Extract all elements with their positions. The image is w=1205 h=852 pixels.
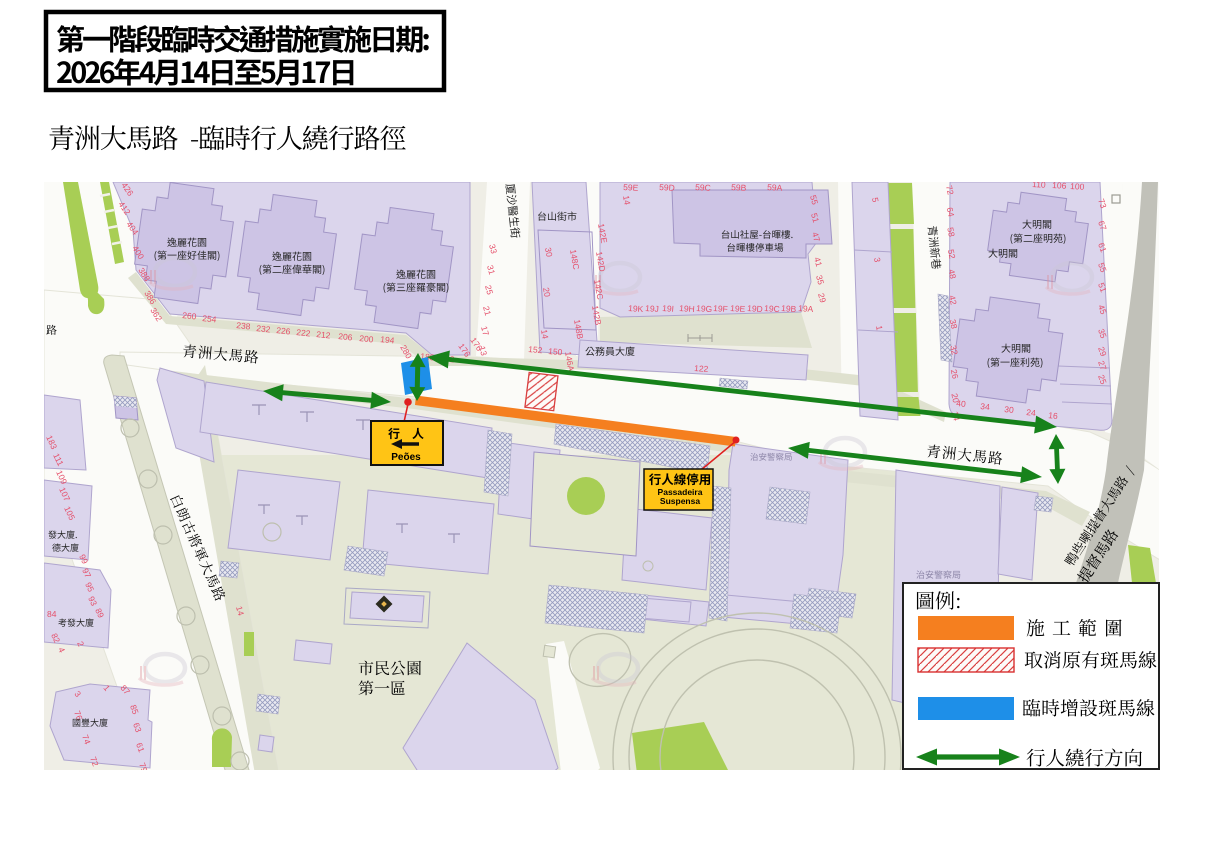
svg-text:254: 254 [202, 313, 217, 324]
svg-text:59B: 59B [731, 182, 747, 193]
svg-text:206: 206 [338, 331, 353, 342]
svg-text:19H: 19H [679, 303, 695, 314]
svg-text:14: 14 [621, 195, 633, 206]
svg-text:238: 238 [236, 320, 251, 331]
svg-text:19D: 19D [747, 303, 763, 314]
svg-text:19E: 19E [730, 303, 746, 314]
svg-text:19I: 19I [662, 303, 674, 314]
svg-text:19J: 19J [645, 303, 659, 314]
svg-text:222: 222 [296, 327, 311, 338]
svg-text:24: 24 [1026, 407, 1037, 418]
svg-text:34: 34 [980, 401, 991, 412]
svg-text:19G: 19G [696, 303, 713, 314]
svg-text:19F: 19F [713, 303, 728, 314]
svg-text:19K: 19K [628, 303, 644, 314]
svg-text:40: 40 [956, 398, 967, 409]
svg-text:16: 16 [1048, 410, 1059, 421]
svg-text:150: 150 [548, 346, 563, 357]
svg-text:122: 122 [694, 363, 709, 374]
svg-text:19C: 19C [764, 303, 780, 314]
svg-text:84: 84 [47, 609, 57, 619]
svg-text:152: 152 [528, 344, 543, 355]
svg-text:Suspensa: Suspensa [660, 496, 700, 506]
svg-text:59A: 59A [767, 182, 783, 193]
svg-text:14: 14 [539, 329, 551, 340]
svg-text:59D: 59D [659, 182, 675, 193]
svg-text:19A: 19A [798, 303, 814, 314]
svg-text:232: 232 [256, 323, 271, 334]
svg-text:30: 30 [1004, 404, 1015, 415]
svg-text:212: 212 [316, 329, 331, 340]
svg-text:Peões: Peões [391, 452, 421, 463]
svg-text:59E: 59E [623, 182, 639, 193]
svg-text:226: 226 [276, 325, 291, 336]
svg-text:194: 194 [380, 334, 395, 345]
svg-text:30: 30 [543, 247, 555, 258]
svg-text:59C: 59C [695, 182, 711, 193]
svg-text:100: 100 [1070, 181, 1085, 192]
svg-text:200: 200 [359, 333, 374, 344]
svg-text:260: 260 [182, 310, 197, 321]
svg-text:19B: 19B [781, 303, 797, 314]
svg-text:20: 20 [541, 287, 553, 298]
